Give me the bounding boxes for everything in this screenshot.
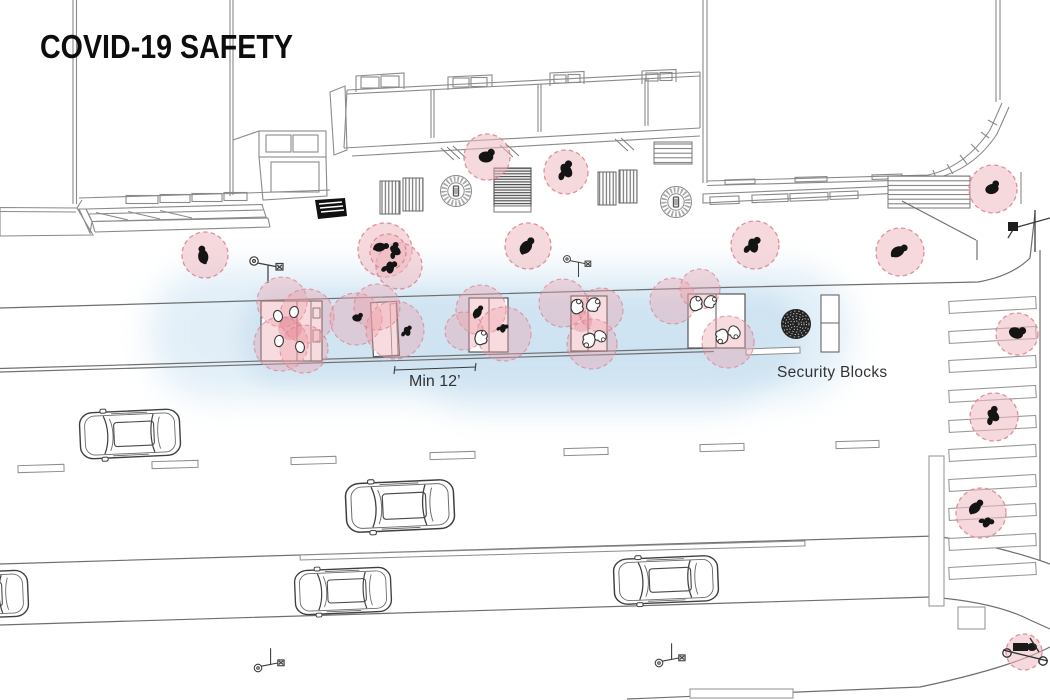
svg-text:Min 12’: Min 12’ [409,373,461,390]
svg-text:Security Blocks: Security Blocks [777,364,887,381]
svg-text:COVID-19 SAFETY: COVID-19 SAFETY [40,28,293,65]
